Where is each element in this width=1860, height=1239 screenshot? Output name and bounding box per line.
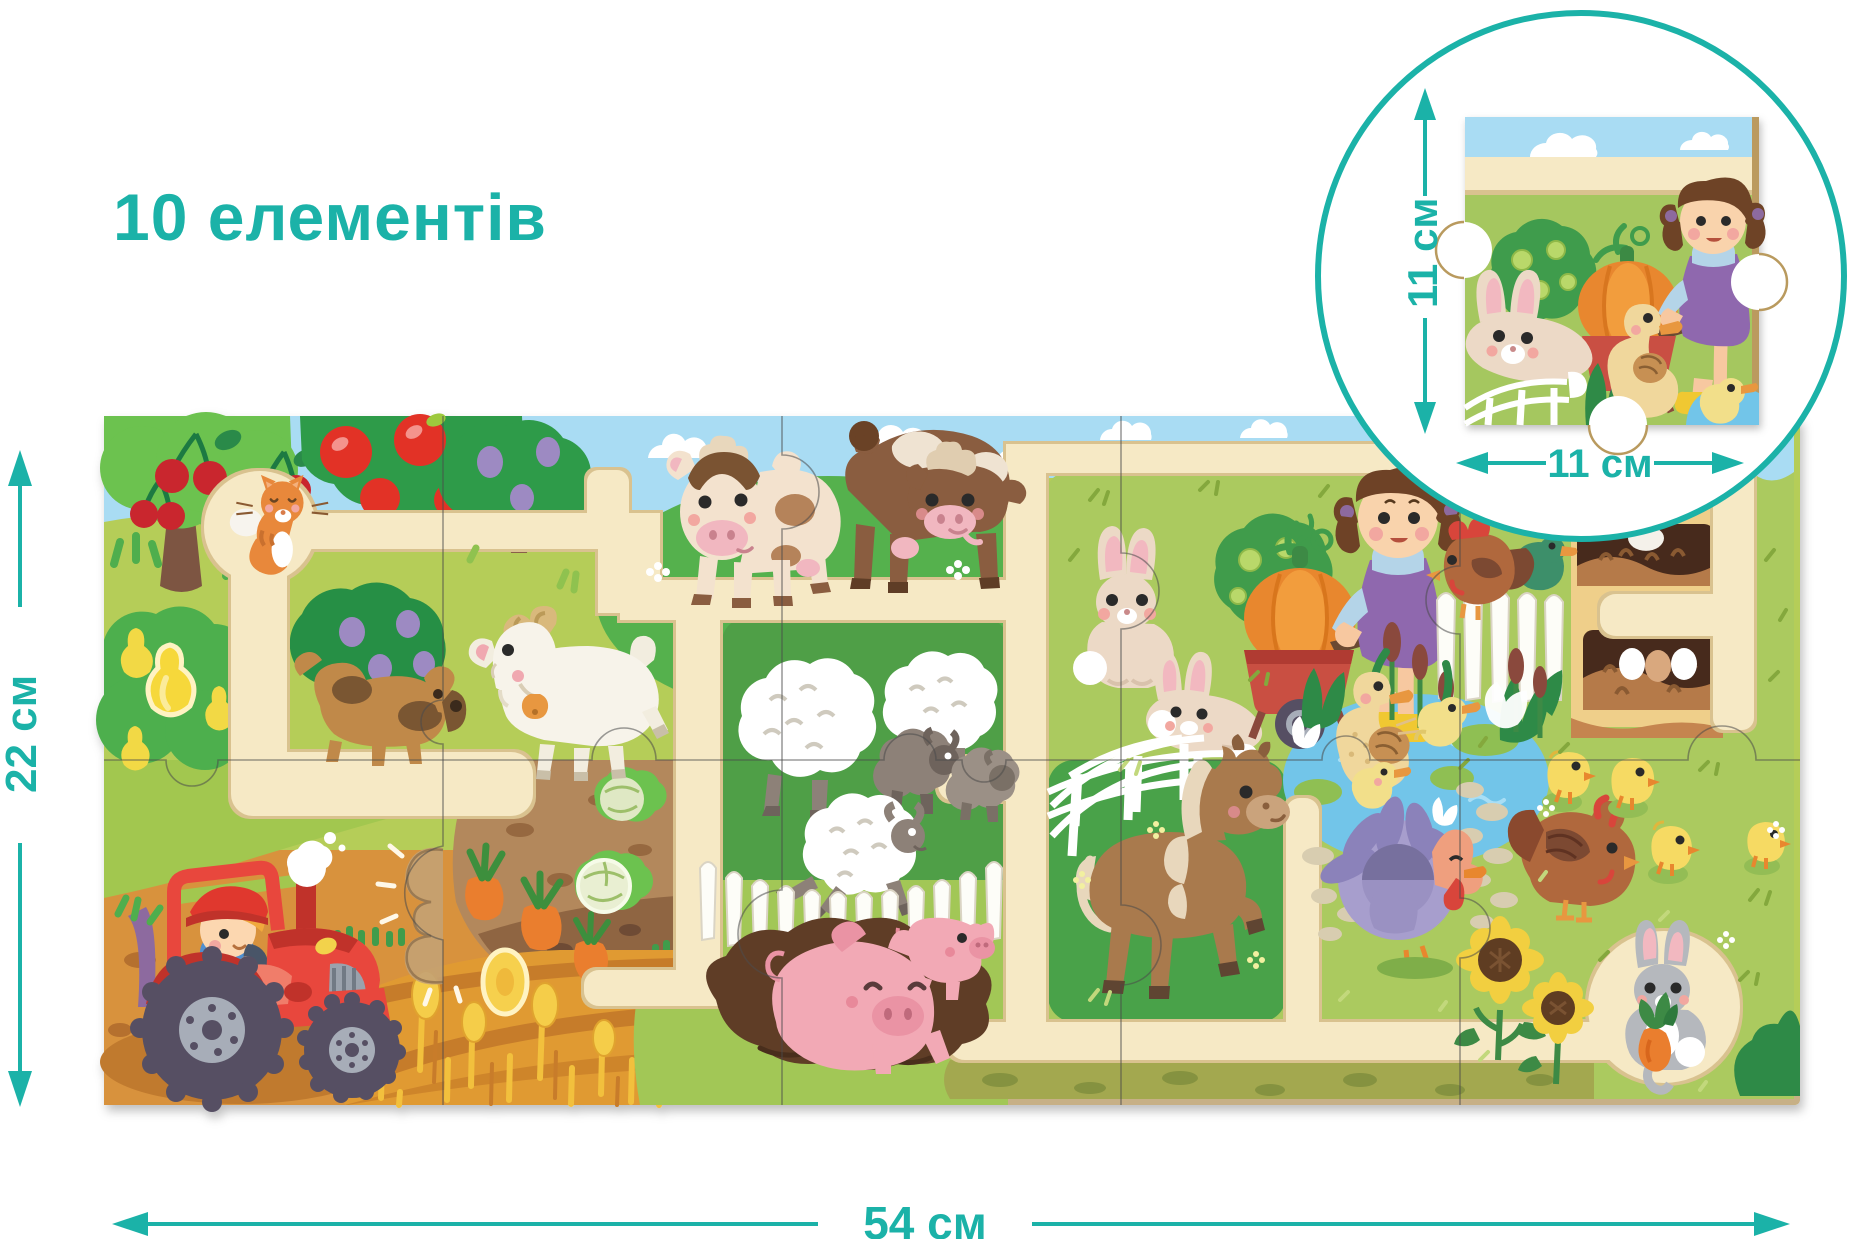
svg-text:10 елементів: 10 елементів (113, 180, 547, 254)
svg-text:54 см: 54 см (863, 1197, 987, 1239)
svg-text:11 см: 11 см (1399, 198, 1446, 309)
svg-text:11 см: 11 см (1547, 442, 1652, 486)
svg-text:22 см: 22 см (0, 675, 46, 793)
